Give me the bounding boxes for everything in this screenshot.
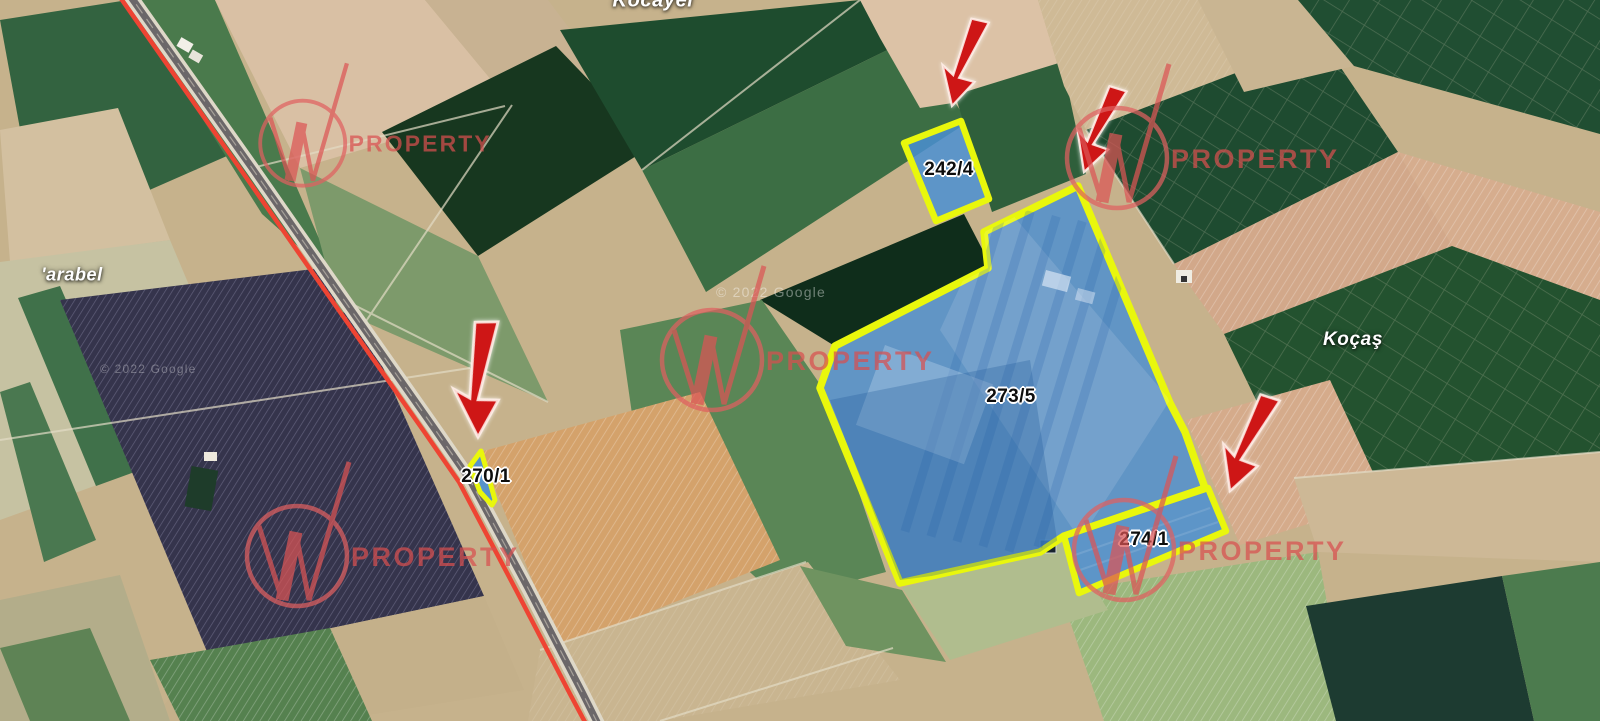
small-structures [176,37,1192,553]
red-arrow-to-274-1 [1205,387,1292,496]
brand-watermark: W PROPERTY [250,65,361,193]
highway-road [115,0,598,721]
w-logo-icon: W [250,65,361,193]
brand-watermark: W PROPERTY [235,464,365,614]
place-label-kocayel: Kocayel [613,0,694,13]
w-logo-icon: W [235,464,365,614]
brand-watermark-text: PROPERTY [351,542,520,573]
parcel-label-274-1: 274/1 [1119,529,1169,551]
red-arrow-to-273-5 [1061,80,1137,177]
w-logo-icon: W [1055,66,1185,216]
parcel-273-5-shape [820,186,1205,583]
red-arrow-to-270-1 [446,316,513,439]
red-arrow-to-242-4 [929,13,1000,111]
map-attribution: © 2022 Google [100,362,197,376]
parcel-label-270-1: 270/1 [461,466,511,488]
satellite-map: © 2022 Google © 2022 Google [0,0,1600,721]
brand-watermark-text: PROPERTY [766,346,935,377]
parcel-overlay [0,0,1600,721]
field-paths [0,0,1600,721]
map-attribution: © 2022 Google [716,284,826,300]
field-patchwork [0,0,1600,721]
brand-watermark-text: PROPERTY [349,131,492,157]
parcel-label-242-4: 242/4 [924,159,974,181]
place-label-kocas: Koçaş [1323,329,1383,351]
satellite-imagery [0,0,1600,721]
annotation-arrows [446,13,1292,497]
road-highlight-line [115,0,586,721]
place-label-arabel: 'arabel [41,265,103,286]
brand-watermark: W PROPERTY [1055,66,1185,216]
brand-watermark-text: PROPERTY [1178,536,1347,567]
brand-watermark-text: PROPERTY [1171,144,1340,175]
parcel-label-273-5: 273/5 [986,386,1036,408]
